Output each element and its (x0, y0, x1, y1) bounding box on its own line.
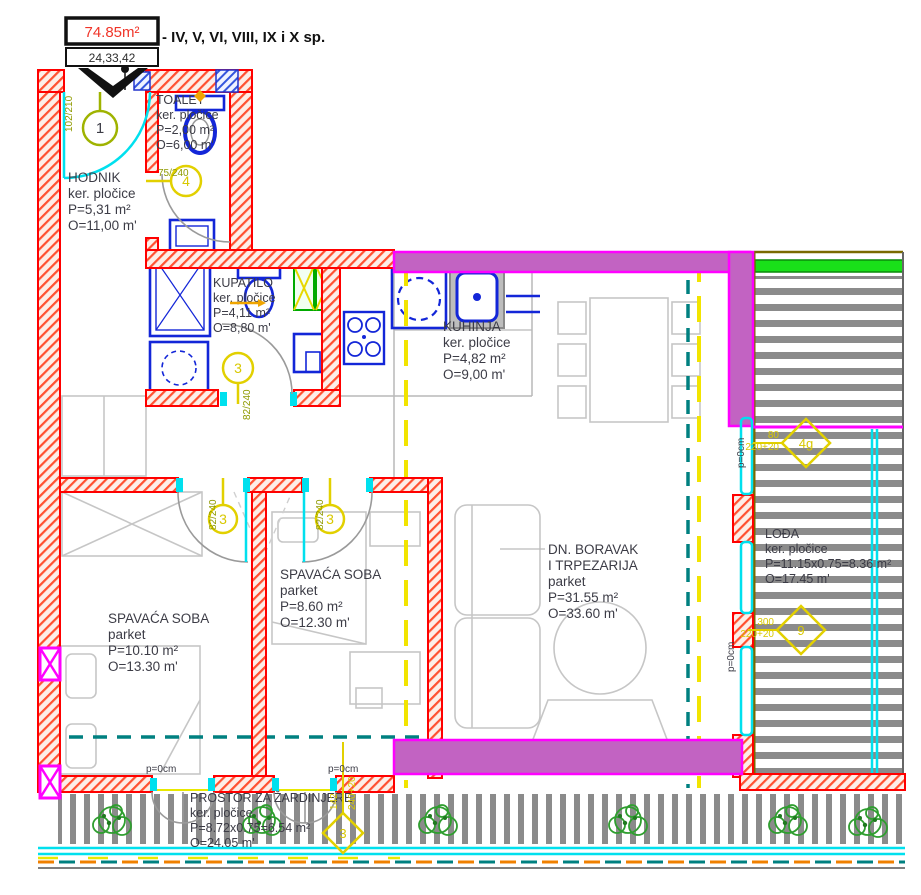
svg-text:O=17.45 m': O=17.45 m' (765, 572, 830, 586)
svg-text:P=11.15x0.75=8.36 m²: P=11.15x0.75=8.36 m² (765, 557, 891, 571)
washbasin (150, 342, 208, 394)
door-tag-kupatilo: 3 82/240 (223, 353, 253, 420)
loggia-green-strip (755, 260, 903, 272)
svg-text:82/240: 82/240 (208, 499, 219, 530)
chair (356, 688, 382, 708)
chair (558, 344, 586, 376)
svg-text:3: 3 (219, 511, 227, 527)
wall-magenta-column (729, 252, 753, 426)
door-jamb (290, 392, 297, 406)
wall-bath-top (146, 250, 394, 268)
column-x-box-2 (40, 766, 60, 798)
wall-magenta-bottom (394, 740, 742, 774)
svg-text:4g: 4g (799, 436, 813, 451)
door-jamb (272, 778, 279, 791)
svg-text:O=24.05 m': O=24.05 m' (190, 836, 255, 850)
chair (558, 386, 586, 418)
chair (672, 386, 700, 418)
room-label-kupatilo: KUPATILO ker. pločice P=4,11 m² O=8,80 m… (213, 276, 276, 335)
svg-text:parket: parket (108, 627, 146, 642)
entrance-door-arc (64, 92, 150, 178)
parapet-label-right-1: p=0cm (736, 438, 747, 468)
svg-text:142: 142 (329, 793, 340, 810)
wall-magenta-top (394, 252, 750, 272)
room-name: HODNIK (68, 170, 121, 185)
svg-text:82/240: 82/240 (315, 499, 326, 530)
svg-text:P=2,00 m²: P=2,00 m² (156, 123, 214, 137)
sofa-module-2 (455, 618, 540, 728)
sofa-module-1 (455, 505, 540, 615)
svg-text:P=10.10 m²: P=10.10 m² (108, 643, 179, 658)
svg-text:O=8,80 m': O=8,80 m' (213, 321, 271, 335)
wall-left (38, 70, 60, 790)
floor-plan-page: 74.85m² 24,33,42 - IV, V, VI, VIII, IX i… (0, 0, 921, 895)
apartment-area: 74.85m² (84, 24, 139, 41)
svg-text:220+20: 220+20 (740, 629, 774, 640)
room-name: LOĐA (765, 527, 800, 541)
svg-text:O=9,00 m': O=9,00 m' (443, 367, 505, 382)
svg-text:75/240: 75/240 (158, 168, 189, 179)
pillow (66, 724, 96, 768)
door-jamb (330, 778, 337, 791)
svg-text:parket: parket (280, 583, 318, 598)
bedroom2-door-arc (302, 492, 372, 562)
svg-text:O=13.30 m': O=13.30 m' (108, 659, 178, 674)
svg-text:9: 9 (797, 623, 804, 638)
svg-text:220+20: 220+20 (745, 442, 779, 453)
pillow (278, 518, 318, 542)
svg-text:80: 80 (768, 430, 780, 441)
svg-text:O=12.30 m': O=12.30 m' (280, 615, 350, 630)
window-right-2 (741, 542, 752, 613)
door-jamb (176, 478, 183, 492)
room-label-spavaca-lijeva: SPAVAĆA SOBA parket P=10.10 m² O=13.30 m… (108, 611, 209, 674)
column-hatched (216, 70, 238, 92)
door-jamb (366, 478, 373, 492)
svg-text:ker. pločice: ker. pločice (68, 186, 136, 201)
window-right-3 (741, 647, 752, 735)
floors-note: - IV, V, VI, VIII, IX i X sp. (162, 29, 325, 46)
door-jamb (220, 392, 227, 406)
desk (350, 652, 420, 704)
room-name: PROSTOR ZA ŽARDINJERE (190, 790, 352, 805)
media-unit (532, 700, 668, 742)
wall-bottom-loggia (740, 774, 905, 790)
svg-text:ker. pločice: ker. pločice (443, 335, 511, 350)
svg-text:300: 300 (757, 617, 774, 628)
nightstand (370, 512, 420, 546)
chair (672, 344, 700, 376)
room-name: SPAVAĆA SOBA (280, 567, 381, 582)
room-name: DN. BORAVAK (548, 542, 638, 557)
svg-text:O=11,00 m': O=11,00 m' (68, 218, 137, 233)
column-x-box-1 (40, 648, 60, 680)
svg-text:102/210: 102/210 (64, 95, 75, 132)
wall-bedroom-living (428, 478, 442, 778)
room-name: KUPATILO (213, 276, 273, 290)
stove (344, 312, 384, 364)
svg-text:ker. pločice: ker. pločice (156, 108, 219, 122)
svg-text:3: 3 (234, 360, 242, 376)
planter-band (38, 790, 905, 868)
loggia-deck (753, 252, 903, 790)
svg-text:P=8.60 m²: P=8.60 m² (280, 599, 343, 614)
svg-text:3: 3 (339, 826, 346, 841)
svg-text:240+20: 240+20 (347, 776, 358, 810)
room-label-hodnik: HODNIK ker. pločice P=5,31 m² O=11,00 m' (68, 170, 137, 233)
svg-text:O=33.60 m': O=33.60 m' (548, 606, 618, 621)
room-name: SPAVAĆA SOBA (108, 611, 209, 626)
svg-text:ker. pločice: ker. pločice (190, 806, 253, 820)
furniture (60, 268, 700, 774)
floor-plan-drawing: 74.85m² 24,33,42 - IV, V, VI, VIII, IX i… (0, 0, 921, 895)
chair (558, 302, 586, 334)
door-jamb (208, 778, 215, 791)
wall-between-bedrooms (252, 492, 266, 778)
parapet-label-bottom-1: p=0cm (146, 764, 176, 775)
wall-bath-kitchen (322, 268, 340, 396)
svg-text:P=4,11 m²: P=4,11 m² (213, 306, 270, 320)
apartment-units: 24,33,42 (89, 51, 136, 65)
chair (672, 302, 700, 334)
parapet-label-bottom-2: p=0cm (328, 764, 358, 775)
svg-text:I TRPEZARIJA: I TRPEZARIJA (548, 558, 638, 573)
door-tag-spavaca-lijeva: 3 82/240 (208, 478, 237, 533)
svg-text:parket: parket (548, 574, 586, 589)
door-tag-spavaca-srednja: 3 82/240 (315, 478, 344, 533)
door-jamb (302, 478, 309, 492)
pillow (66, 654, 96, 698)
planter-hatch (58, 794, 905, 844)
svg-text:1: 1 (96, 120, 104, 137)
svg-text:3: 3 (326, 511, 334, 527)
svg-text:O=6,00 m': O=6,00 m' (156, 138, 214, 152)
svg-text:82/240: 82/240 (242, 389, 253, 420)
door-jamb (243, 478, 250, 492)
room-label-toalet: TOALET ker. pločice P=2,00 m² O=6,00 m' (156, 90, 219, 152)
room-label-kuhinja: KUHINJA ker. pločice P=4,82 m² O=9,00 m' (443, 319, 511, 382)
windows (150, 392, 752, 791)
dining-table (590, 298, 668, 422)
svg-text:P=8.72x0.75=6.54 m²: P=8.72x0.75=6.54 m² (190, 821, 310, 835)
svg-text:P=4,82 m²: P=4,82 m² (443, 351, 506, 366)
svg-text:P=31.55 m²: P=31.55 m² (548, 590, 619, 605)
door-jamb (150, 778, 157, 791)
svg-text:ker. pločice: ker. pločice (765, 542, 828, 556)
svg-text:P=5,31 m²: P=5,31 m² (68, 202, 131, 217)
parapet-label-right-2: p=0cm (726, 642, 737, 672)
door-tag-entrance: 1 102/210 (64, 92, 117, 145)
room-name: KUHINJA (443, 319, 501, 334)
wall-bedrooms-top (60, 478, 178, 492)
parapet-annotations: p=0cm p=0cm p=0cm p=0cm (146, 438, 747, 775)
